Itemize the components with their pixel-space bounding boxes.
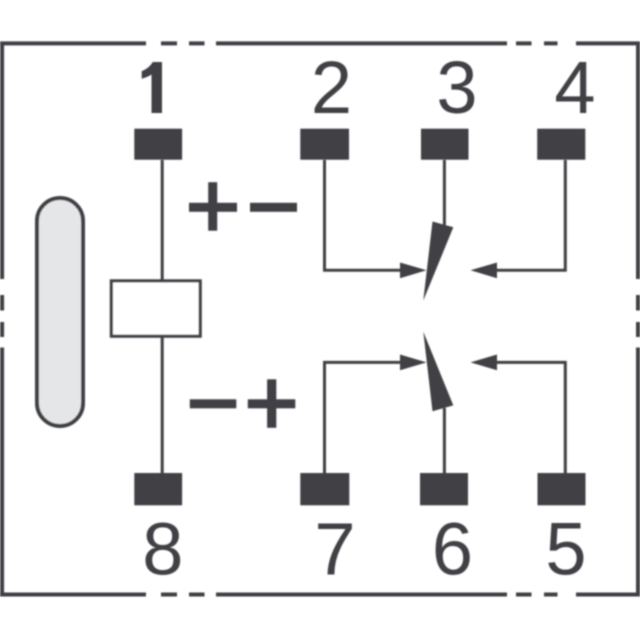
svg-text:5: 5	[545, 508, 586, 591]
svg-text:7: 7	[314, 508, 355, 591]
svg-text:6: 6	[432, 508, 473, 591]
svg-text:3: 3	[436, 46, 477, 129]
svg-text:2: 2	[311, 46, 352, 129]
svg-text:4: 4	[554, 46, 595, 129]
svg-text:8: 8	[142, 508, 183, 591]
